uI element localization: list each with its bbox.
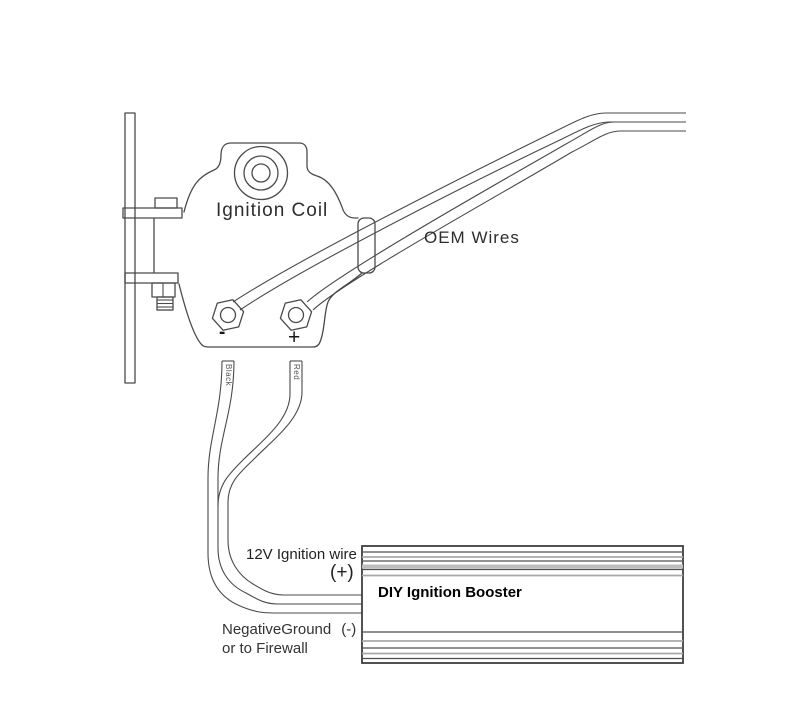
black-wire-label: Black (223, 364, 232, 386)
ground-wire-label: NegativeGround(-) (222, 622, 356, 639)
mounting-bracket (123, 113, 182, 383)
ignition-coil-body (154, 143, 375, 347)
red-wire-label: Red (291, 364, 300, 380)
booster-outline (362, 546, 683, 663)
booster-label: DIY Ignition Booster (378, 585, 522, 602)
ignition-wire-polarity: (+) (330, 563, 354, 584)
ht-terminal-circles (235, 147, 288, 200)
booster-box (362, 546, 683, 663)
bracket-vertical-strip (125, 113, 135, 383)
bracket-lower-flange (125, 273, 178, 283)
ignition-coil-label: Ignition Coil (216, 201, 328, 222)
bracket-top-tab (155, 198, 177, 208)
bracket-bolt (152, 283, 175, 310)
diagram-canvas: Ignition Coil OEM Wires - + Black Red 12… (0, 0, 800, 712)
coil-right-lower-outline (320, 273, 362, 342)
ground-wire-label-text: NegativeGround (222, 621, 331, 638)
oem-wires-label: OEM Wires (424, 229, 520, 248)
ground-wire-label-line2: or to Firewall (222, 641, 308, 658)
bracket-top-flange (123, 208, 182, 218)
ground-wire-polarity: (-) (341, 621, 356, 638)
negative-terminal-nut (212, 300, 243, 330)
negative-terminal-mark: - (219, 323, 225, 344)
wiring-diagram-svg (0, 0, 800, 712)
positive-terminal-mark: + (288, 326, 300, 349)
